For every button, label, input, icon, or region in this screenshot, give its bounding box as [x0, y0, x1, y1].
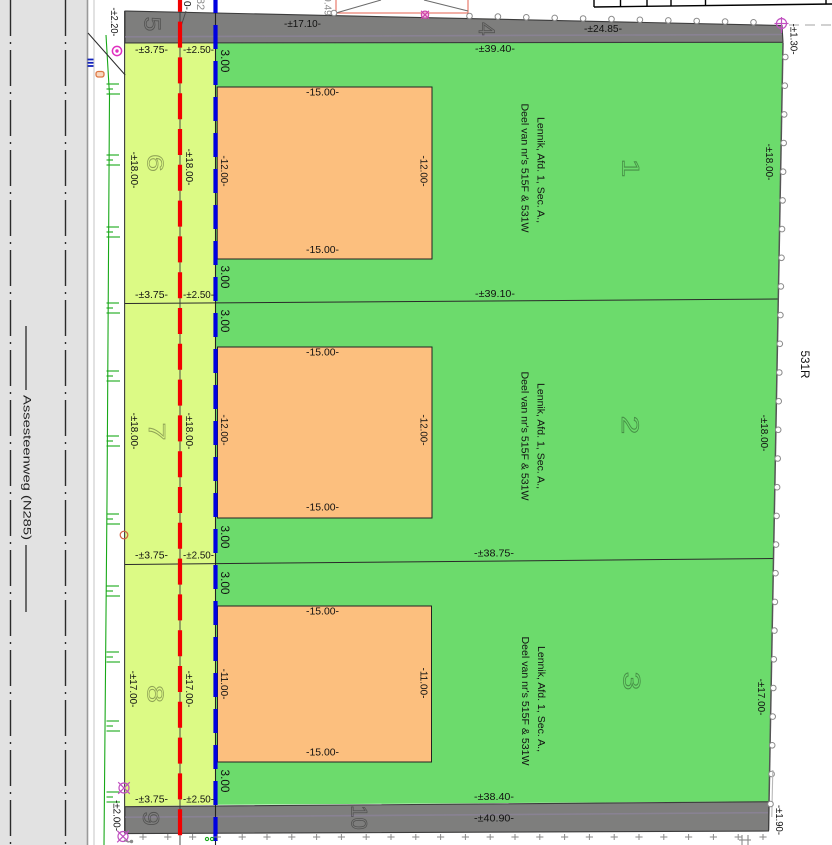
svg-text:-±17.10-: -±17.10- [284, 18, 321, 30]
svg-text:Deel van nr's 515F & 531W: Deel van nr's 515F & 531W [519, 637, 531, 766]
svg-text:-11.00-: -11.00- [418, 668, 430, 699]
svg-text:Lennik, Afd. 1, Sec. A.,: Lennik, Afd. 1, Sec. A., [535, 117, 546, 223]
svg-text:-±18.00-: -±18.00- [758, 415, 770, 452]
svg-text:-±2.50-: -±2.50- [183, 794, 214, 806]
svg-text:1: 1 [617, 159, 643, 178]
svg-text:Lennik, Afd. 1, Sec. A.,: Lennik, Afd. 1, Sec. A., [535, 646, 546, 752]
svg-text:-±2.20-: -±2.20- [108, 8, 120, 37]
svg-text:-12.00-: -12.00- [218, 415, 230, 446]
svg-text:9.49: 9.49 [322, 0, 333, 16]
svg-text:-±38.75-: -±38.75- [474, 548, 514, 560]
svg-text:Assesteenweg (N285): Assesteenweg (N285) [21, 395, 33, 540]
svg-text:5: 5 [139, 17, 164, 32]
svg-text:10: 10 [347, 805, 372, 829]
svg-text:-±18.00-: -±18.00- [128, 152, 140, 189]
svg-text:-±1.30-: -±1.30- [788, 24, 800, 55]
svg-text:-±38.40-: -±38.40- [474, 791, 514, 803]
svg-text:-±3.75-: -±3.75- [135, 289, 168, 301]
svg-text:-±3.75-: -±3.75- [135, 550, 168, 562]
svg-text:2: 2 [616, 416, 642, 435]
svg-text:-±2.50-: -±2.50- [183, 44, 214, 56]
svg-text:-15.00-: -15.00- [306, 87, 339, 99]
svg-text:-±39.40-: -±39.40- [475, 43, 515, 55]
svg-text:82: 82 [194, 0, 206, 10]
svg-text:-11.00-: -11.00- [218, 669, 230, 700]
svg-text:Lennik, Afd. 1, Sec. A.,: Lennik, Afd. 1, Sec. A., [535, 383, 546, 489]
svg-text:3.00: 3.00 [218, 310, 230, 333]
svg-text:-±3.75-: -±3.75- [135, 794, 168, 806]
svg-text:3.00: 3.00 [218, 50, 230, 73]
svg-text:-15.00-: -15.00- [306, 502, 339, 514]
svg-text:-12.00-: -12.00- [418, 415, 430, 446]
svg-text:-±17.00-: -±17.00- [183, 671, 195, 708]
svg-text:4: 4 [474, 22, 499, 36]
svg-text:-15.00-: -15.00- [306, 606, 339, 618]
svg-text:8: 8 [143, 685, 168, 703]
svg-text:-12.00-: -12.00- [218, 156, 230, 187]
svg-text:3.00: 3.00 [218, 266, 230, 289]
svg-text:3.00: 3.00 [218, 770, 230, 793]
svg-text:-15.00-: -15.00- [306, 747, 339, 759]
svg-text:Deel van nr's 515F & 531W: Deel van nr's 515F & 531W [519, 104, 531, 233]
svg-text:-±18.00-: -±18.00- [183, 413, 195, 450]
svg-text:3.00: 3.00 [218, 526, 230, 549]
svg-text:-±18.00-: -±18.00- [183, 149, 195, 186]
svg-text:9: 9 [137, 811, 162, 826]
svg-text:7: 7 [144, 423, 169, 441]
svg-text:-±2.00-: -±2.00- [111, 800, 123, 831]
svg-text:531R: 531R [798, 351, 810, 379]
svg-text:-±2.50-: -±2.50- [183, 550, 214, 562]
svg-text:-±3.75-: -±3.75- [135, 44, 168, 56]
svg-text:-±2.50-: -±2.50- [183, 289, 214, 301]
svg-text:3: 3 [618, 672, 644, 691]
svg-text:Deel van nr's 515F & 531W: Deel van nr's 515F & 531W [519, 372, 531, 501]
svg-text:-±18.00-: -±18.00- [128, 413, 140, 450]
svg-text:-±24.85-: -±24.85- [584, 23, 622, 35]
svg-text:-±40.90-: -±40.90- [474, 813, 514, 825]
svg-text:6: 6 [143, 154, 168, 172]
svg-text:3.00: 3.00 [218, 572, 230, 595]
svg-text:-±18.00-: -±18.00- [763, 144, 775, 181]
svg-text:-12.00-: -12.00- [418, 156, 430, 187]
svg-text:-±39.10-: -±39.10- [475, 288, 515, 300]
svg-text:0-: 0- [181, 1, 192, 10]
svg-text:-15.00-: -15.00- [306, 347, 339, 359]
svg-text:-±17.00-: -±17.00- [127, 671, 139, 708]
svg-text:-±1.90-: -±1.90- [773, 805, 785, 835]
svg-text:-15.00-: -15.00- [306, 244, 339, 256]
svg-text:-±17.00-: -±17.00- [755, 679, 767, 716]
